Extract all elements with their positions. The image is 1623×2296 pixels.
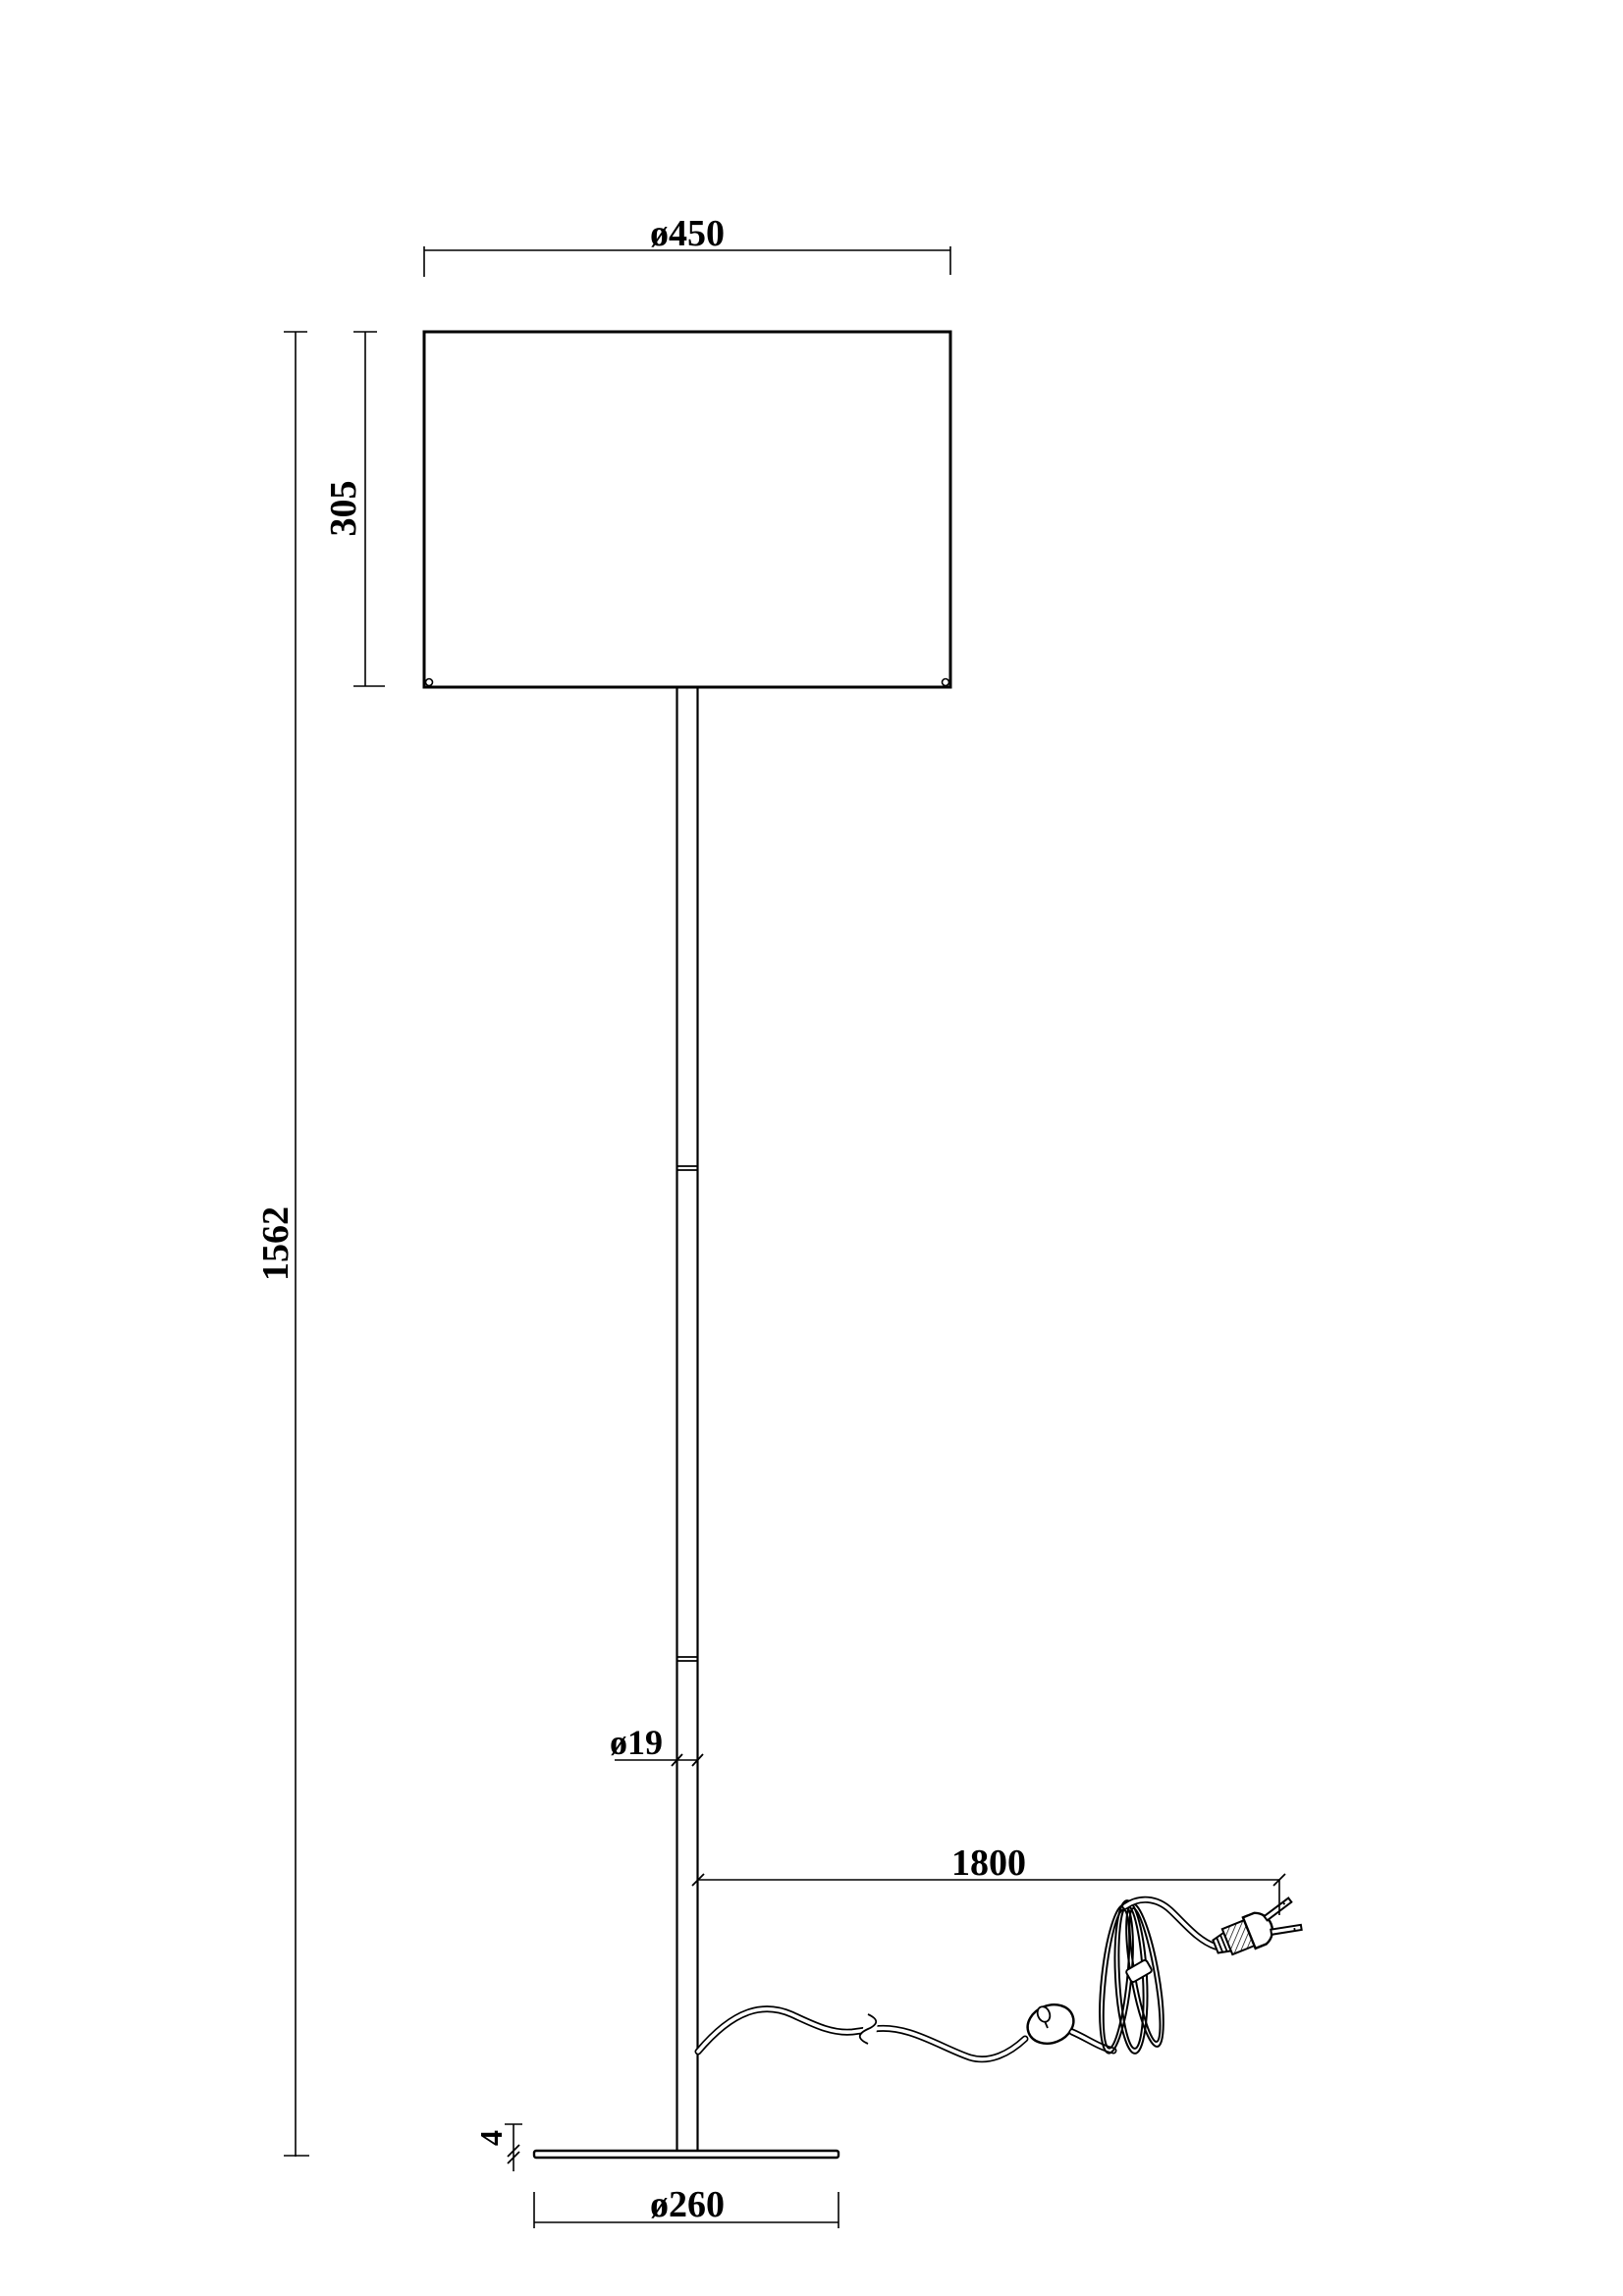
base-thickness-label: 4 [473, 2130, 509, 2146]
total-height-label: 1562 [255, 1206, 297, 1281]
inline-switch [1022, 1998, 1080, 2050]
dim-base-diameter: ø260 [534, 2184, 839, 2228]
lamp-base [534, 2151, 839, 2158]
pole-joint-upper [677, 1166, 698, 1170]
plug-pin-upper [1264, 1898, 1291, 1921]
dim-shade-height: 305 [323, 332, 385, 686]
lamp-technical-drawing: ø450 305 1562 ø19 1800 4 [0, 0, 1623, 2296]
dim-shade-diameter: ø450 [424, 213, 950, 277]
lamp-shade [424, 332, 950, 687]
base-diameter-label: ø260 [650, 2184, 725, 2225]
dim-base-thickness: 4 [473, 2124, 522, 2171]
shade-height-label: 305 [323, 481, 364, 537]
shade-corner-fitting-left [426, 679, 433, 686]
lamp-pole [677, 688, 698, 2151]
cord-length-label: 1800 [951, 1842, 1026, 1884]
plug-pin-lower [1271, 1925, 1301, 1935]
dim-total-height: 1562 [255, 332, 309, 2157]
pole-diameter-label: ø19 [610, 1723, 663, 1762]
shade-corner-fitting-right [943, 679, 949, 686]
shade-diameter-label: ø450 [650, 213, 725, 254]
dim-cord-length: 1800 [692, 1842, 1285, 1915]
pole-joint-lower [677, 1657, 698, 1661]
dim-pole-diameter: ø19 [610, 1723, 703, 1766]
power-cord [698, 1897, 1303, 2059]
power-plug [1209, 1897, 1303, 1962]
cord-coil [1094, 1899, 1170, 2055]
